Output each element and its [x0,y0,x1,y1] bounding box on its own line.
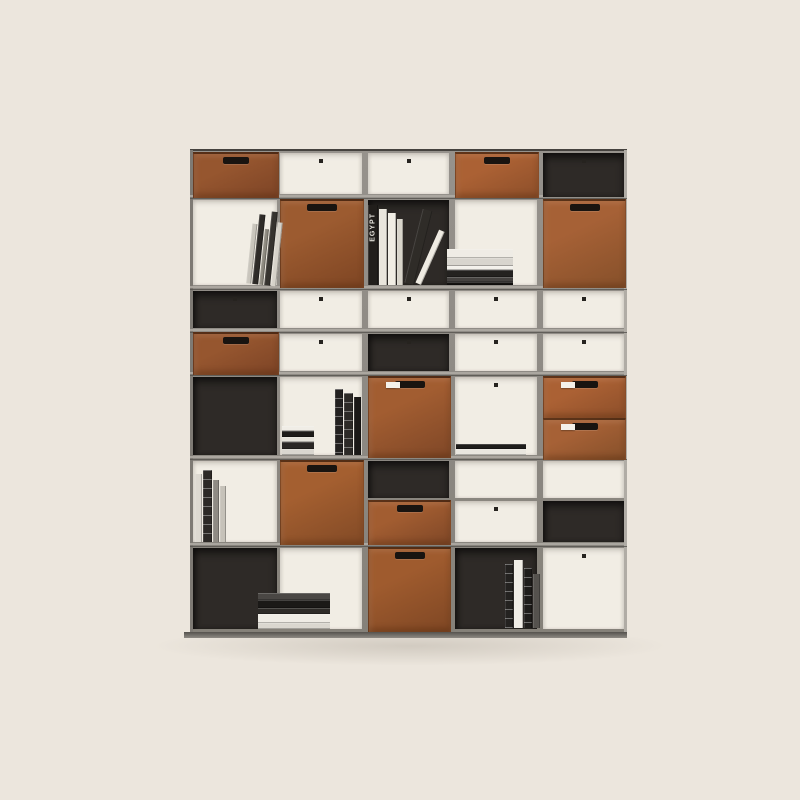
stacked-book [447,270,513,277]
book-spine [213,480,219,542]
leather-storage-box-r4c2 [368,376,451,458]
drawer-handle-cutout [223,337,249,344]
shelf-under-shadow [190,289,627,290]
bottom-stack [258,593,330,629]
stacked-book [447,249,513,258]
leather-drawer-r3c0 [193,332,279,375]
dark-compartment-r0c4 [543,153,624,197]
open-compartment-r2c4 [543,291,624,328]
open-compartment-r3c1 [280,334,362,371]
stacked-book [447,258,513,266]
book-spine [524,568,532,628]
paper-tag [561,424,575,430]
open-compartment-r0c1 [280,153,362,194]
peg-hole-dot [494,507,498,511]
open-compartment-r5c3b [455,501,537,542]
drawer-handle-cutout [397,505,423,512]
peg-hole-dot [494,340,498,344]
open-compartment-r3c3 [455,334,537,371]
open-compartment-r5c4a [543,461,624,498]
drawer-handle-cutout [570,204,600,211]
dark-compartment-r5c2a [368,461,449,498]
book-spine [514,560,523,628]
peg-hole-dot [319,340,323,344]
peg-hole-dot [494,297,498,301]
leather-drawer-r0c3 [455,152,539,198]
leather-storage-box-r1c4 [543,199,626,288]
leather-storage-box-r5c1 [280,460,364,545]
open-compartment-r6c4 [543,548,624,629]
paper-tag [386,382,400,388]
book-spine [335,389,343,455]
dark-compartment-r4c0 [193,377,277,455]
drawer-handle-cutout [395,552,425,559]
peg-hole-dot [407,159,411,163]
open-compartment-r2c2 [368,291,449,328]
book-spine [505,564,513,628]
peg-hole-dot [582,297,586,301]
drawer-handle-cutout [572,381,598,388]
drawer-handle-cutout [572,423,598,430]
book-spine: EGYPT [368,205,378,285]
product-photo-scene: EGYPT [0,0,800,800]
leather-storage-box-r1c1 [280,199,364,288]
shelf-front-highlight [190,329,627,331]
peg-hole-dot [407,297,411,301]
bottom-right-books [505,560,540,628]
stacked-book [258,593,330,600]
peg-hole-dot [494,383,498,387]
book-spine [344,393,353,455]
mid-dark-books [335,389,361,455]
mid-stack [282,426,314,455]
leather-drawer-r4c4a [543,376,626,418]
leather-drawer-r4c4b [543,418,626,460]
magazine-stack-top-right [447,249,513,285]
stacked-book [258,600,330,608]
stacked-book [447,282,513,285]
peg-hole-dot [407,340,411,344]
peg-hole-dot [319,297,323,301]
book-spine-title: EGYPT [370,213,377,242]
egypt-books: EGYPT [368,205,421,285]
drawer-handle-cutout [223,157,249,164]
paper-tag [561,382,575,388]
book-spine [379,209,387,285]
stacked-book [282,449,314,455]
dark-compartment-r2c0 [193,291,277,328]
leather-drawer-r5c2b [368,500,451,545]
drawer-handle-cutout [307,465,337,472]
peg-hole-dot [233,297,237,301]
peg-hole-dot [582,159,586,163]
book-spine [354,397,361,455]
peg-hole-dot [582,554,586,558]
book-spine [397,219,403,285]
leather-storage-box-r6c2 [368,547,451,632]
peg-hole-dot [319,159,323,163]
leather-drawer-r0c0 [193,152,279,198]
open-compartment-r3c4 [543,334,624,371]
open-compartment-r5c3a [455,461,537,498]
open-compartment-r0c2 [368,153,449,194]
book-spine [195,474,202,542]
stacked-book [258,614,330,623]
book-spine [388,213,396,285]
dark-compartment-r3c2 [368,334,449,371]
open-compartment-r2c1 [280,291,362,328]
book-spine [203,470,212,542]
drawer-handle-cutout [307,204,337,211]
book-spine [220,486,226,542]
peg-hole-dot [582,340,586,344]
bookcase-top-edge [190,149,627,151]
stacked-book [456,449,526,455]
open-compartment-r2c3 [455,291,537,328]
book-spine [533,574,540,628]
stacked-book [258,623,330,629]
thin-pair [456,444,526,455]
dark-compartment-r5c4b [543,501,624,542]
left-standing-books [195,470,226,542]
bookcase-plinth [184,632,627,638]
drawer-handle-cutout [484,157,510,164]
stacked-book [282,442,314,449]
